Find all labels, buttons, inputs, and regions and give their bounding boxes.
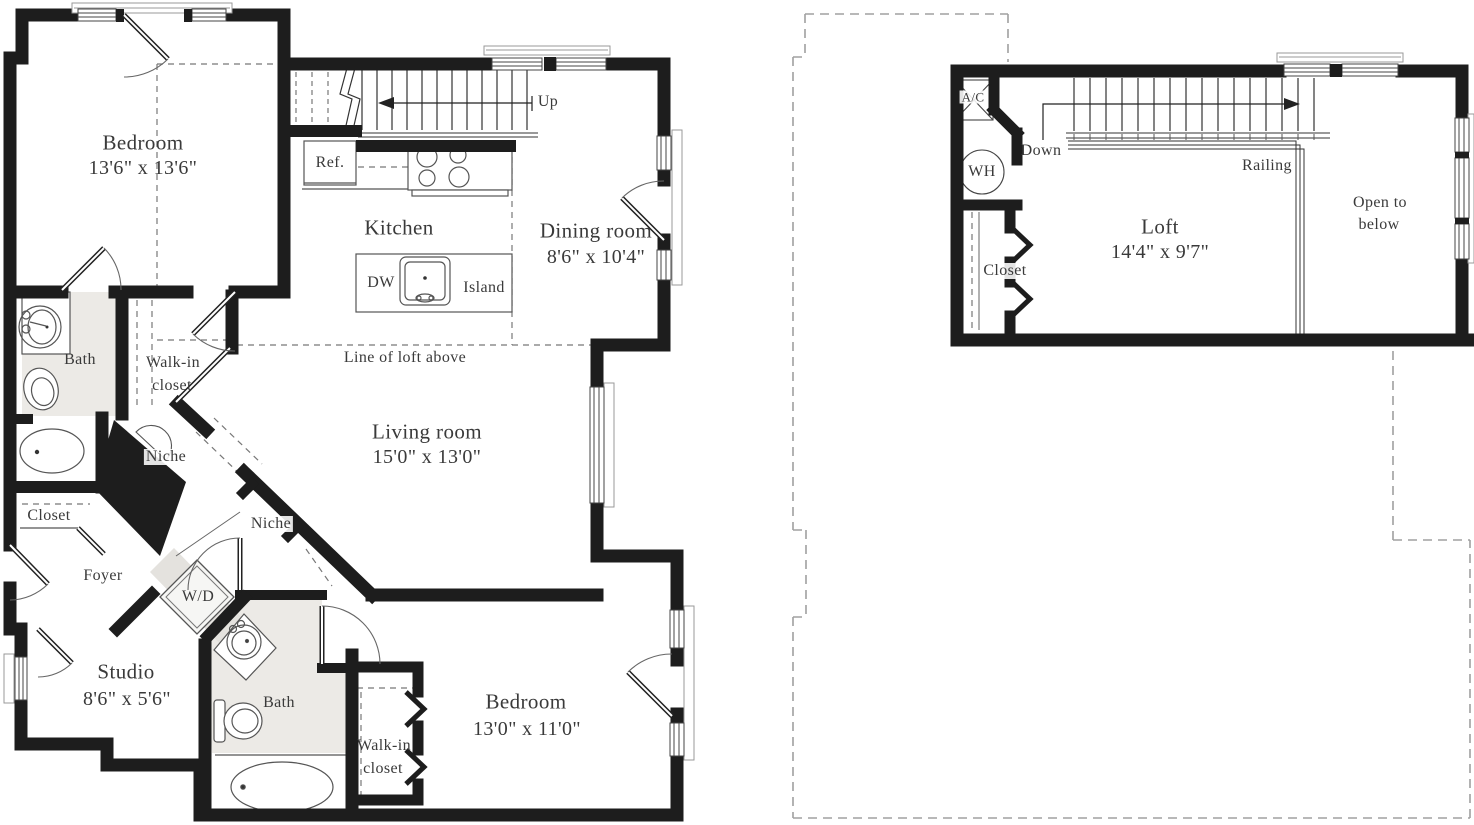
floor-plan-page: Bedroom 13'6" x 13'6" Up Ref. Kitchen DW…: [0, 0, 1474, 825]
bedroom2-dims: 13'0" x 11'0": [473, 719, 581, 739]
up-arrow-icon: [378, 97, 394, 109]
walkin1-line2: closet: [152, 378, 192, 394]
foyer-label: Foyer: [83, 568, 122, 584]
water-heater-label: WH: [968, 164, 995, 180]
bath2-toilet: [214, 700, 262, 742]
dishwasher-label: DW: [367, 275, 394, 291]
niche2-label: Niche: [249, 516, 293, 532]
niche1-label: Niche: [144, 449, 188, 465]
island-label: Island: [463, 280, 505, 296]
bath1-tub: [20, 429, 84, 473]
studio-name: Studio: [97, 662, 154, 683]
bath2-tub: [231, 762, 333, 812]
loft-dims: 14'4" x 9'7": [1111, 242, 1209, 262]
loft-line-note: Line of loft above: [344, 350, 466, 366]
bedroom1-dims: 13'6" x 13'6": [89, 158, 198, 178]
ac-unit-label: A/C: [960, 91, 987, 104]
washer-dryer-label: W/D: [182, 589, 214, 605]
stairs-loft: [1043, 78, 1330, 334]
living-room-name: Living room: [372, 422, 482, 443]
stairs-down-label: Down: [1021, 143, 1062, 159]
walkin2-line2: closet: [363, 761, 403, 777]
loft-name: Loft: [1141, 217, 1179, 238]
stairs-up-label: Up: [538, 94, 558, 110]
loft-closet-label: Closet: [981, 263, 1028, 279]
kitchen-name: Kitchen: [364, 218, 433, 239]
studio-dims: 8'6" x 5'6": [83, 689, 171, 709]
bath1-name: Bath: [64, 352, 96, 368]
refrigerator-label: Ref.: [316, 155, 345, 171]
floor-plan-drawing: [0, 0, 1474, 825]
unit-footprint-outline: [793, 14, 1470, 818]
dining-room-dims: 8'6" x 10'4": [547, 247, 645, 267]
walkin1-line1: Walk-in: [146, 355, 200, 371]
bedroom1-name: Bedroom: [103, 133, 184, 154]
railing-label: Railing: [1240, 158, 1294, 174]
open-to-below-line1: Open to: [1353, 195, 1407, 211]
bedroom2-name: Bedroom: [486, 692, 567, 713]
walkin2-line1: Walk-in: [357, 738, 411, 754]
dining-room-name: Dining room: [540, 221, 652, 242]
closet1-label: Closet: [27, 508, 70, 524]
open-to-below-line2: below: [1358, 217, 1399, 233]
bath2-name: Bath: [263, 695, 295, 711]
living-room-dims: 15'0" x 13'0": [373, 447, 482, 467]
